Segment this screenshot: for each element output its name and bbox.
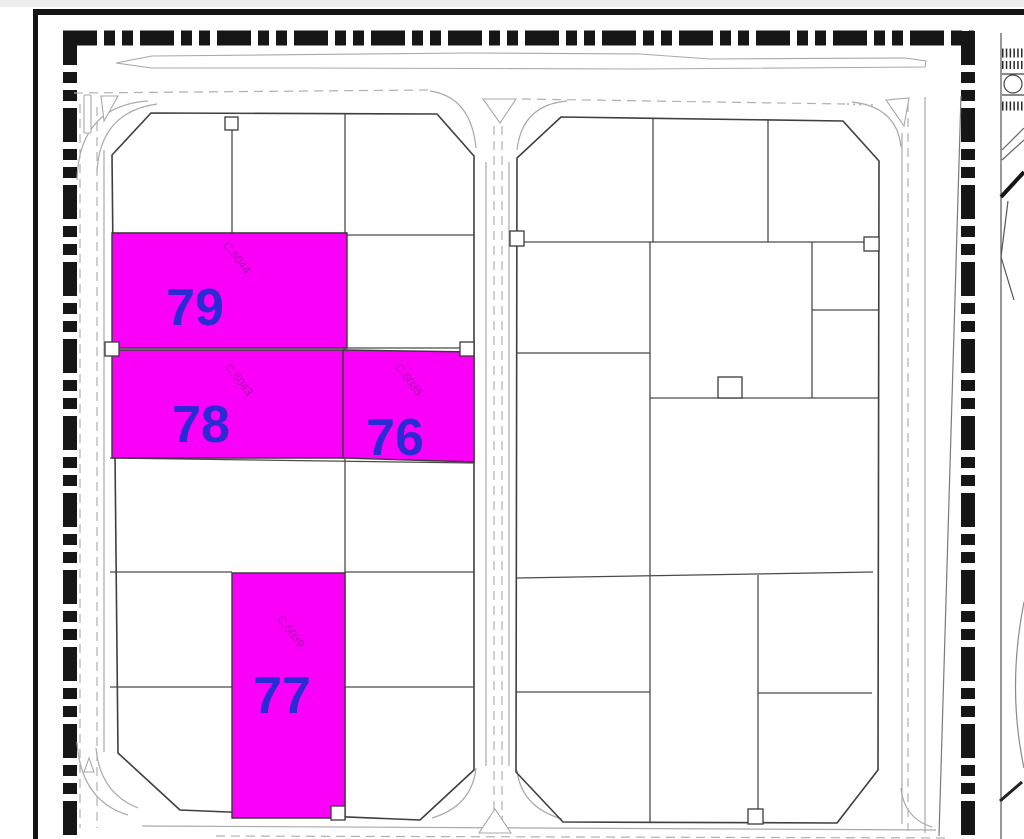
cadastral-plan-scan: 79 78 76 77 C.6044 C.6043 C.6035 C.6039 (0, 0, 1024, 839)
parcel-78-number: 78 (172, 396, 230, 454)
boundary-marker (864, 237, 879, 251)
parcel-77-number: 77 (253, 667, 311, 725)
frame-left-line (33, 9, 38, 839)
boundary-corner-tl (63, 31, 77, 46)
frame-top-line (33, 9, 1024, 15)
boundary-corner-tr (961, 31, 975, 46)
boundary-marker (105, 342, 119, 356)
parcel-76-number: 76 (366, 409, 424, 467)
boundary-marker (225, 117, 238, 130)
boundary-marker (510, 231, 524, 246)
boundary-marker (331, 806, 345, 820)
boundary-marker (748, 809, 763, 824)
parcel-79-number: 79 (166, 279, 224, 337)
west-road-island-bar (84, 95, 91, 133)
boundary-marker (718, 377, 742, 398)
boundary-marker (460, 342, 474, 356)
scan-edge-band (0, 0, 1024, 7)
plan-canvas: 79 78 76 77 C.6044 C.6043 C.6035 C.6039 (0, 0, 1024, 839)
